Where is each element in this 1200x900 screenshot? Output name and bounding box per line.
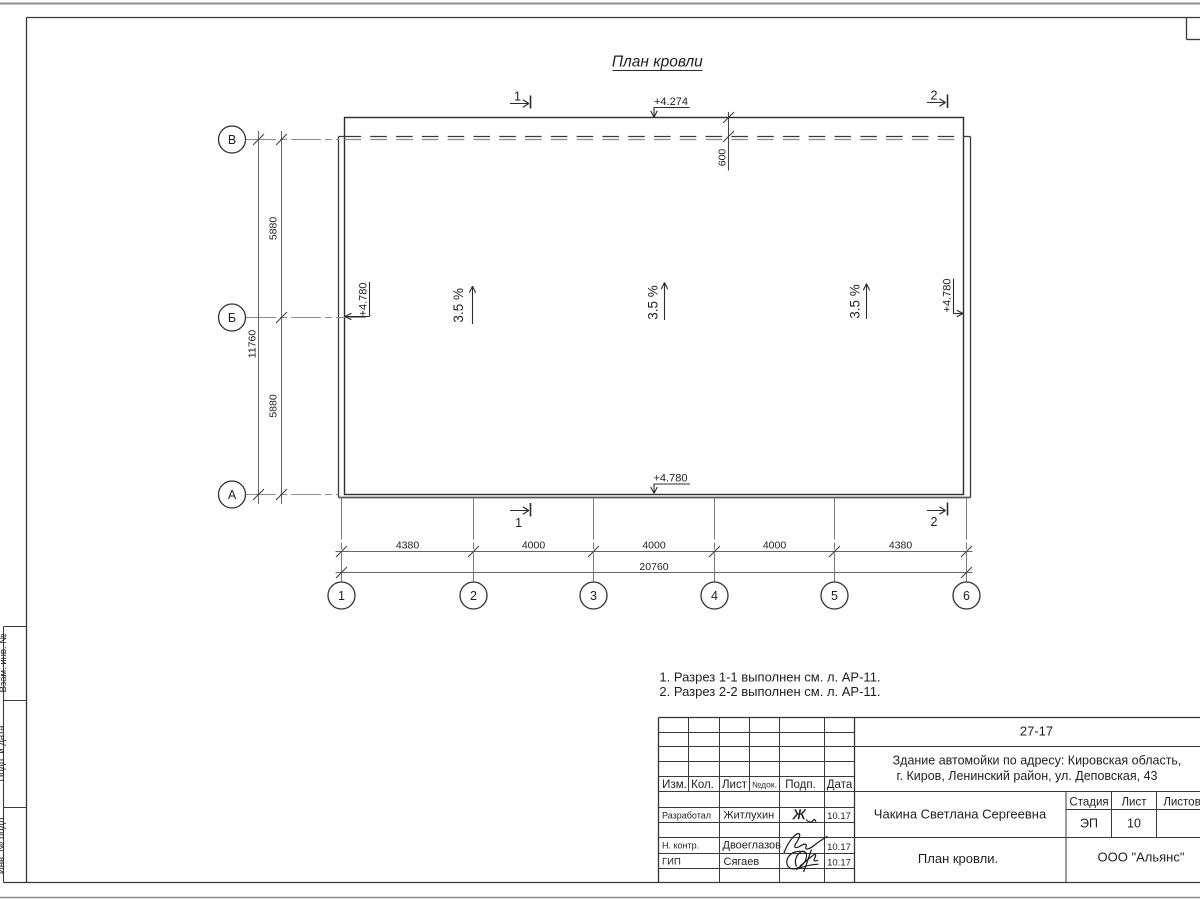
svg-text:ЭП: ЭП bbox=[1080, 817, 1098, 831]
svg-text:Инв. № подл.: Инв. № подл. bbox=[0, 815, 7, 874]
svg-text:2. Разрез 2-2 выполнен см. л.: 2. Разрез 2-2 выполнен см. л. АР-11. bbox=[659, 684, 880, 699]
svg-text:г. Киров, Ленинский район, ул.: г. Киров, Ленинский район, ул. Деповская… bbox=[897, 769, 1158, 783]
svg-text:10.17: 10.17 bbox=[827, 842, 851, 853]
svg-text:Разработал: Разработал bbox=[662, 810, 711, 820]
svg-text:2: 2 bbox=[931, 89, 938, 103]
svg-text:3.5 %: 3.5 % bbox=[451, 288, 466, 323]
svg-text:4: 4 bbox=[711, 589, 718, 603]
svg-text:ГИП: ГИП bbox=[662, 856, 681, 867]
svg-text:Чакина Светлана Сергеевна: Чакина Светлана Сергеевна bbox=[874, 807, 1047, 822]
svg-text:3.5 %: 3.5 % bbox=[646, 285, 661, 320]
svg-text:1: 1 bbox=[515, 516, 522, 530]
svg-text:6: 6 bbox=[963, 589, 970, 603]
svg-text:План кровли: План кровли bbox=[612, 54, 703, 71]
svg-text:5: 5 bbox=[831, 589, 838, 603]
svg-text:3.5 %: 3.5 % bbox=[848, 284, 863, 319]
svg-text:Взам. инв. №: Взам. инв. № bbox=[0, 634, 9, 693]
svg-text:+4.780: +4.780 bbox=[654, 473, 688, 485]
svg-text:Здание автомойки по адресу: Ки: Здание автомойки по адресу: Кировская об… bbox=[893, 754, 1182, 768]
svg-text:Подп.: Подп. bbox=[785, 779, 816, 791]
svg-text:Лист: Лист bbox=[1122, 797, 1148, 809]
svg-text:Изм.: Изм. bbox=[662, 779, 687, 791]
svg-text:1. Разрез 1-1 выполнен см. л.: 1. Разрез 1-1 выполнен см. л. АР-11. bbox=[659, 669, 880, 684]
svg-text:600: 600 bbox=[717, 149, 729, 167]
svg-text:4380: 4380 bbox=[396, 540, 420, 552]
svg-text:Кол.: Кол. bbox=[691, 779, 714, 791]
svg-text:4000: 4000 bbox=[522, 540, 546, 552]
svg-text:Подп. и дата: Подп. и дата bbox=[0, 725, 7, 782]
svg-text:А: А bbox=[228, 488, 237, 502]
svg-text:Ж: Ж bbox=[792, 807, 807, 822]
svg-text:11760: 11760 bbox=[247, 330, 259, 359]
svg-text:Лист: Лист bbox=[722, 779, 748, 791]
svg-text:План кровли.: План кровли. bbox=[918, 851, 998, 866]
svg-text:5880: 5880 bbox=[268, 394, 280, 418]
svg-text:Двоеглазов: Двоеглазов bbox=[723, 840, 782, 852]
svg-text:10.17: 10.17 bbox=[827, 858, 851, 869]
svg-text:2: 2 bbox=[470, 589, 477, 603]
svg-text:4000: 4000 bbox=[642, 540, 666, 552]
svg-text:Житлухин: Житлухин bbox=[724, 810, 775, 822]
svg-text:10.17: 10.17 bbox=[827, 811, 851, 822]
svg-text:27-17: 27-17 bbox=[1020, 724, 1053, 739]
svg-text:20760: 20760 bbox=[639, 561, 668, 573]
svg-text:1: 1 bbox=[338, 589, 345, 603]
svg-text:+4.274: +4.274 bbox=[654, 96, 688, 108]
svg-text:+4.780: +4.780 bbox=[942, 279, 954, 313]
svg-text:+4.780: +4.780 bbox=[358, 283, 370, 317]
svg-text:Листов: Листов bbox=[1163, 797, 1200, 809]
svg-text:4000: 4000 bbox=[763, 540, 787, 552]
svg-text:Н. контр.: Н. контр. bbox=[662, 840, 699, 850]
svg-text:ООО "Альянс": ООО "Альянс" bbox=[1098, 850, 1185, 865]
svg-text:10: 10 bbox=[1127, 817, 1141, 831]
svg-text:Сягаев: Сягаев bbox=[724, 856, 760, 868]
svg-text:4380: 4380 bbox=[889, 540, 913, 552]
svg-text:1: 1 bbox=[514, 89, 521, 103]
svg-text:Дата: Дата bbox=[827, 779, 853, 791]
svg-text:№док.: №док. bbox=[752, 780, 777, 790]
svg-text:В: В bbox=[228, 133, 236, 147]
svg-text:2: 2 bbox=[931, 515, 938, 529]
svg-text:5880: 5880 bbox=[268, 217, 280, 241]
svg-text:Б: Б bbox=[228, 311, 236, 325]
svg-text:Стадия: Стадия bbox=[1069, 797, 1108, 809]
svg-text:3: 3 bbox=[590, 589, 597, 603]
